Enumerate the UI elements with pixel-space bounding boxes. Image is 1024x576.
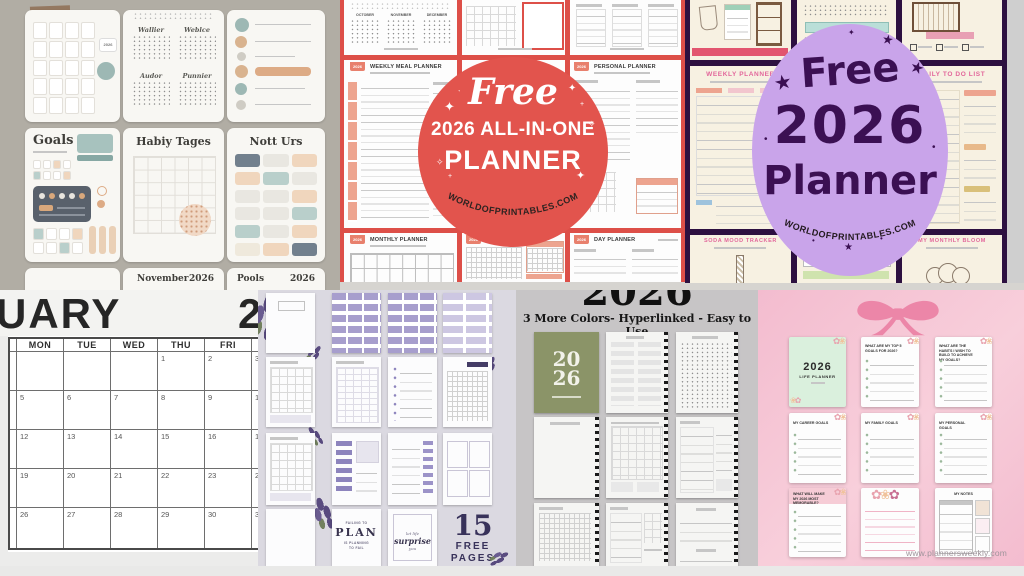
page-header (680, 421, 700, 424)
day-number: 22 (161, 471, 169, 480)
year-pill: 2026 (99, 38, 117, 52)
day-number: 14 (114, 432, 122, 441)
cover-page: 20 26 (534, 332, 599, 413)
page-thumb-quadrants (443, 433, 492, 505)
section-header (636, 80, 660, 83)
weekly-page-2 (606, 503, 668, 566)
spiral-binding (595, 503, 599, 566)
day-number: 12 (20, 432, 28, 441)
footer-caption (498, 48, 532, 50)
calendar-cell (64, 352, 110, 390)
calendar-cell (10, 352, 16, 390)
list-bullets (793, 508, 797, 552)
page-thumb-blocks-light (443, 293, 492, 353)
notes-lines (680, 553, 732, 563)
list-bullets (865, 431, 869, 477)
mini-cell (72, 228, 83, 240)
pools-label: Pools (237, 274, 264, 284)
day-box (49, 78, 63, 95)
boho-tile: 2026 Wallier Weblce Audor Punnier (0, 0, 340, 290)
notes-divider (696, 549, 716, 552)
page-thumb-lines-pills (388, 433, 437, 505)
badge-site-arc: WORLDOFPRINTABLES.COM (752, 24, 948, 276)
table-footer (526, 274, 562, 279)
purple-planner-tile: WEEKLY PLANNER DAILY TO DO LIST SODA MOO… (685, 0, 1024, 290)
list-line (255, 41, 311, 42)
dots-strip (133, 12, 213, 20)
quadrant-box (447, 441, 468, 468)
list-lines (798, 508, 841, 552)
quadrant-box (447, 470, 468, 497)
day-number: 30 (208, 510, 216, 519)
year-title: 2 (238, 290, 258, 338)
calendar-cell: 21 (111, 469, 157, 507)
list-header (725, 5, 750, 10)
tracker-dot (49, 193, 55, 199)
week-lines (680, 427, 714, 493)
todo-lines (964, 194, 996, 222)
weekday-header: FRI (205, 339, 251, 351)
month-buttons (611, 342, 634, 406)
calendar-cell: 12 (17, 430, 63, 468)
page-thumb-table (332, 357, 381, 427)
cup-doodle (699, 5, 718, 31)
bottom-margin (0, 552, 258, 566)
checkbox-label (970, 46, 984, 48)
pill-column (423, 441, 433, 497)
year-tab: 2026 (350, 235, 365, 244)
daily-page (676, 503, 738, 566)
date-line (658, 239, 678, 241)
header-sliver (10, 339, 16, 351)
calendar-cell (17, 352, 63, 390)
mini-cell (43, 160, 51, 169)
calendar-cell: 22 (158, 469, 204, 507)
col-header (576, 4, 602, 7)
habit-grid (466, 247, 522, 279)
col-lines (648, 9, 678, 47)
surprise-post-text: you (388, 546, 437, 551)
small-table (636, 178, 678, 214)
footer-caption (384, 48, 418, 50)
mini-month-label: Audor (131, 72, 171, 80)
tracker-page (462, 0, 565, 55)
page-header (696, 508, 716, 511)
table-body (527, 248, 563, 271)
spiral-binding (734, 417, 738, 498)
notes-grid (235, 154, 317, 258)
spiral-binding (664, 332, 668, 413)
note-block (235, 243, 260, 256)
day-number: 9 (208, 393, 212, 402)
boho-months-card: Wallier Weblce Audor Punnier (123, 10, 224, 122)
note-block (235, 225, 260, 238)
flower-icon: ✿❀✿ (871, 488, 898, 501)
list-line (255, 56, 295, 57)
dotted-circle (179, 204, 211, 236)
month-grid (270, 443, 313, 491)
spiral-binding (734, 332, 738, 413)
calendar-cell: 30 (205, 508, 251, 548)
pools-year: 2026 (290, 274, 315, 284)
day-number: 27 (67, 510, 75, 519)
mini-grid (33, 228, 83, 254)
page-thumb-dotlist (388, 357, 437, 427)
free-text: FREE (443, 541, 503, 552)
note-block (235, 154, 260, 167)
list-line (255, 88, 305, 89)
calendar-cell: 9 (205, 391, 251, 429)
day-number: 23 (208, 471, 216, 480)
day-box (33, 97, 47, 114)
cover-label: LIFE PLANNER (789, 374, 846, 379)
calendar-cell: 19 (17, 469, 63, 507)
card-title: MY CAREER GOALS (793, 421, 829, 426)
sidebar-lines (716, 427, 732, 475)
bow-shape (857, 301, 898, 320)
ribbon-bow-icon (850, 294, 946, 338)
day-box (65, 41, 79, 58)
page-thumb-month (266, 433, 315, 505)
day-number: 29 (161, 510, 169, 519)
todo-lines (964, 152, 996, 182)
blank-card (25, 268, 120, 290)
section-pill (964, 144, 986, 150)
page-thumb-cover (266, 293, 315, 353)
calendar-cell (10, 391, 16, 429)
peach-circle (97, 200, 105, 208)
mini-cell (59, 228, 70, 240)
todo-lines (964, 98, 996, 138)
day-box (65, 78, 79, 95)
count-text: 15 (443, 509, 503, 542)
goals-card: Goals (25, 128, 120, 262)
tracker-pill (39, 205, 53, 211)
col-lines (574, 253, 626, 279)
calendar-cell: 6 (64, 391, 110, 429)
free-2026-badge: ★ ★ ★ ✦ • • ★ • • Free 2026 Planner WORL… (752, 24, 948, 276)
mini-cell (63, 160, 71, 169)
day-number: 7 (114, 393, 118, 402)
mini-month-grid (350, 19, 380, 43)
tracker-grid (466, 6, 516, 46)
caption-line (33, 151, 67, 153)
day-number: 28 (114, 510, 122, 519)
bow-shape (900, 318, 925, 335)
note-block (235, 207, 260, 220)
side-box (975, 518, 990, 534)
day-labels (611, 422, 659, 424)
tan-pill (89, 226, 96, 254)
col-lines (612, 9, 642, 47)
pill-stack (336, 441, 352, 495)
month-grid (350, 253, 454, 283)
section-header (574, 249, 596, 252)
list-bullets (939, 357, 943, 401)
day-number: 8 (161, 393, 165, 402)
mini-month-grid (132, 35, 170, 61)
calendar-cell: 1 (158, 352, 204, 390)
list-row (235, 65, 248, 78)
list-bullets (793, 431, 797, 477)
note-block (292, 243, 317, 256)
side-lines (356, 465, 377, 495)
calendar-cell: 23 (205, 469, 251, 507)
mini-month-grid (178, 35, 216, 61)
table-header-bar (696, 88, 722, 93)
label-box (278, 301, 305, 311)
sage-tile: 2026 3 More Colors- Hyperlinked - Easy t… (516, 290, 758, 566)
day-number: 21 (114, 471, 122, 480)
mini-cell (53, 160, 61, 169)
list-lines (727, 12, 748, 37)
page-thumb-darkheader (443, 357, 492, 427)
notes-header-bar (696, 200, 712, 205)
spiral-binding (734, 503, 738, 566)
mini-grid (33, 160, 71, 180)
pink-lines (865, 504, 915, 552)
note-block (292, 207, 317, 220)
mini-month-label: DECEMBER (420, 13, 454, 17)
mini-cell (63, 171, 71, 180)
mini-month-label: NOVEMBER (384, 13, 418, 17)
notes-table (939, 500, 973, 554)
note-block (235, 190, 260, 203)
goal-card: ✿❀ WHAT ARE THE HABITS I WISH TO BUILD T… (935, 337, 992, 407)
quadrant-box (469, 441, 490, 468)
row-divider-strip (340, 283, 1024, 290)
calendar-cell: 26 (17, 508, 63, 548)
tracker-dot (39, 193, 45, 199)
list-line (255, 104, 311, 105)
goal-card: ✿❀ MY FAMILY GOALS (861, 413, 919, 483)
mini-cell (46, 228, 57, 240)
dots-strip (350, 2, 450, 10)
mini-month-grid (386, 19, 416, 43)
mini-month-label: OCTOBER (348, 13, 382, 17)
pink-tile: ✿❀ ❀✿ 2026 LIFE PLANNER ✿❀ WHAT ARE MY T… (758, 290, 1024, 566)
plan-post-text: IS PLANNING (332, 541, 381, 545)
footer-caption (610, 48, 644, 50)
list-line (255, 24, 311, 25)
tracker-dot (59, 193, 65, 199)
side-box (975, 500, 990, 516)
day-box (65, 97, 79, 114)
flower-icon: ✿❀ (980, 337, 991, 346)
dots-rows (803, 4, 889, 18)
day-number: 26 (20, 510, 28, 519)
card-title: MY FAMILY GOALS (865, 421, 901, 426)
calendar-cell: 28 (111, 508, 157, 548)
boho-list-card (227, 10, 325, 122)
tan-pill (109, 226, 116, 254)
month-year: 2026 (189, 274, 214, 284)
day-number: 16 (208, 432, 216, 441)
goal-card: ✿❀ WHAT ARE MY TOP 5 GOALS FOR 2026? (861, 337, 919, 407)
floral-notes-card: ✿❀✿ (861, 488, 919, 557)
page-header (610, 507, 628, 510)
goals-title: Goals (33, 133, 73, 148)
list-bullets (939, 431, 943, 477)
day-number: 20 (67, 471, 75, 480)
note-block (263, 172, 288, 185)
watermark: www.plannersweekly.com (906, 548, 1024, 558)
list-row (236, 100, 246, 110)
table-pattern (336, 367, 379, 423)
list-lines (944, 431, 987, 477)
tracker-dot (69, 193, 75, 199)
november-card: November 2026 (123, 268, 224, 290)
frame-left (685, 0, 690, 290)
notes-card: Nott Urs (227, 128, 325, 262)
list-doodle (724, 4, 751, 40)
section-pill (964, 186, 990, 192)
flower-icon: ✿❀ (833, 337, 844, 346)
pools-card: Pools 2026 (227, 268, 325, 290)
mini-month-grid (178, 81, 216, 107)
table-header-bar (728, 88, 754, 93)
calendar-cell: 2 (205, 352, 251, 390)
card-title: WHAT WILL MAKE MY 2026 MOST MEMORABLE? (793, 492, 829, 506)
list-row (235, 18, 249, 32)
note-block (263, 154, 288, 167)
gray-box (356, 441, 379, 463)
day-number: 13 (67, 432, 75, 441)
frame-left (340, 0, 344, 282)
side-grid (644, 513, 662, 543)
page-thumb-month (266, 357, 315, 427)
week-lines (610, 513, 642, 563)
mini-cell (72, 242, 83, 254)
note-block (292, 190, 317, 203)
plan-post-text2: TO FAIL (332, 546, 381, 550)
free-planner-badge: ✦ ˖ ✦ + ✧ ✧ + ✦ Free 2026 ALL-IN-ONE PLA… (418, 57, 608, 247)
calendar-cell: 7 (111, 391, 157, 429)
month-title: UARY (0, 290, 121, 338)
svg-text:WORLDOFPRINTABLES.COM: WORLDOFPRINTABLES.COM (783, 217, 917, 242)
list-row (235, 36, 247, 48)
tracker-line (57, 207, 85, 209)
col-lines (632, 253, 678, 279)
mini-cell (33, 160, 41, 169)
mini-month-label: Wallier (131, 26, 171, 34)
day-box (65, 60, 79, 77)
mini-cell (53, 171, 61, 180)
day-strip (348, 82, 357, 222)
page-header (692, 336, 718, 339)
spiral-binding (664, 417, 668, 498)
month-label: November (137, 274, 188, 284)
list-lines (400, 365, 432, 421)
calendar-cell: 5 (17, 391, 63, 429)
plan-quote-page: FAILING TO PLAN IS PLANNING TO FAIL (332, 509, 381, 566)
page-header (270, 361, 298, 364)
note-block (292, 172, 317, 185)
bow-shape (898, 301, 939, 320)
sidebar-box (716, 479, 732, 491)
plan-pre-text: FAILING TO (332, 521, 381, 525)
day-number: 6 (67, 393, 71, 402)
footer-box (637, 482, 659, 492)
spiral-binding (664, 503, 668, 566)
page-header (550, 422, 580, 425)
day-number: 2 (208, 354, 212, 363)
day-number: 1 (161, 354, 165, 363)
habit-grid (539, 513, 591, 561)
day-number: 5 (20, 393, 24, 402)
list-lines (798, 431, 841, 477)
page-thumb-blank (266, 509, 315, 566)
highlight-pill (255, 67, 311, 76)
mini-cell (33, 242, 44, 254)
free-pages-label: 15 FREE PAGES (443, 509, 503, 566)
calendar-cell: 13 (64, 430, 110, 468)
surprise-quote-page: let life surprise you (388, 509, 437, 566)
weekday-header: THU (158, 339, 204, 351)
january-tile: UARY 2 MON TUE WED THU FRI 1 2 3 5 6 7 8… (0, 290, 258, 566)
page-header (336, 361, 364, 364)
cover-caption (811, 382, 825, 384)
teal-box (77, 134, 113, 153)
red-planner-tile: OCTOBER NOVEMBER DECEMBER 2026 WEEKLY ME… (340, 0, 685, 290)
lavender-tile: FAILING TO PLAN IS PLANNING TO FAIL let … (258, 290, 516, 566)
flower-icon: ✿❀ (907, 413, 918, 422)
calendar-cell: 29 (158, 508, 204, 548)
calendar-cell: 16 (205, 430, 251, 468)
surprise-word-text: surprise (388, 536, 437, 546)
badge-site-text: WORLDOFPRINTABLES.COM (446, 191, 579, 217)
list-bullets (393, 365, 397, 421)
spiral-binding (595, 417, 599, 498)
card-title: MY PERSONAL GOALS (939, 421, 975, 430)
mini-month-label: Weblce (177, 26, 217, 34)
list-row (237, 52, 246, 61)
calendar-cell: 14 (111, 430, 157, 468)
weekly-page (676, 417, 738, 498)
calendar-number-grid (33, 22, 95, 114)
day-box (33, 60, 47, 77)
boho-calendar-card: 2026 (25, 10, 120, 122)
calendar-cell: 20 (64, 469, 110, 507)
table-rows (637, 186, 677, 212)
dates-page (534, 417, 599, 498)
calendar-cell: 27 (64, 508, 110, 548)
habit-title: Habiy Tages (123, 135, 224, 148)
note-block (292, 225, 317, 238)
goal-card: ✿❀ MY PERSONAL GOALS (935, 413, 992, 483)
day-box (49, 60, 63, 77)
notes-table-card: MY NOTES (935, 488, 992, 557)
section-header (632, 249, 654, 252)
dark-header (467, 362, 488, 367)
year-tab: 2026 (350, 62, 365, 71)
section-pill (964, 90, 996, 96)
mini-cell (33, 171, 41, 180)
table-rows (940, 506, 972, 552)
day-box (81, 97, 95, 114)
list-lines (944, 357, 987, 401)
page-header (270, 437, 298, 440)
month-buttons (638, 342, 661, 406)
footer-box (270, 493, 311, 501)
teal-caption (77, 155, 113, 161)
left-margin (0, 336, 8, 566)
day-box (81, 41, 95, 58)
note-block (263, 207, 288, 220)
day-box (49, 22, 63, 39)
list-bullets (865, 357, 869, 401)
habit-card: Habiy Tages (123, 128, 224, 262)
